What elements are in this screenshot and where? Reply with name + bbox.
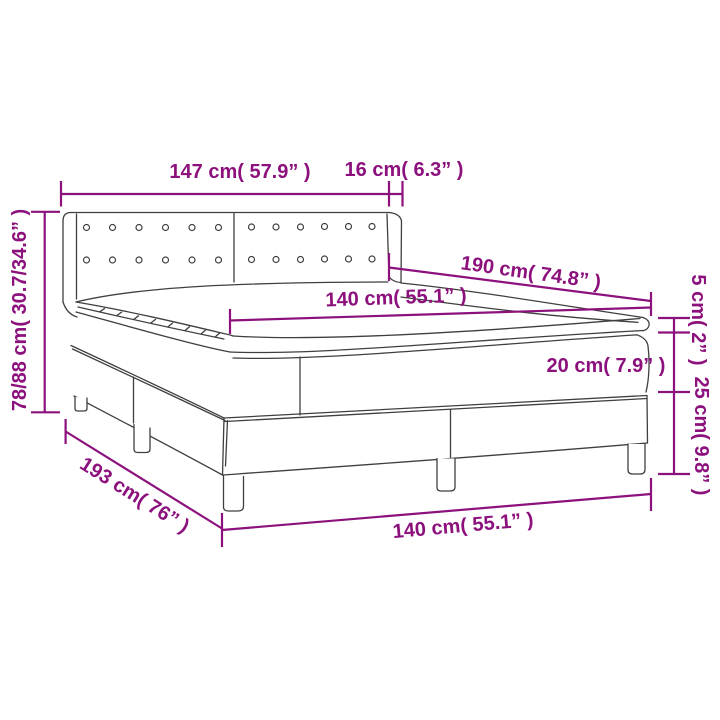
svg-text:25 cm( 9.8” ): 25 cm( 9.8” ) [690,377,712,496]
svg-text:147 cm( 57.9” ): 147 cm( 57.9” ) [169,161,310,183]
svg-text:16 cm( 6.3” ): 16 cm( 6.3” ) [345,159,464,181]
svg-text:78/88 cm( 30.7/34.6” ): 78/88 cm( 30.7/34.6” ) [9,209,31,411]
svg-text:5 cm( 2” ): 5 cm( 2” ) [687,274,709,365]
svg-text:20 cm( 7.9” ): 20 cm( 7.9” ) [547,355,666,377]
